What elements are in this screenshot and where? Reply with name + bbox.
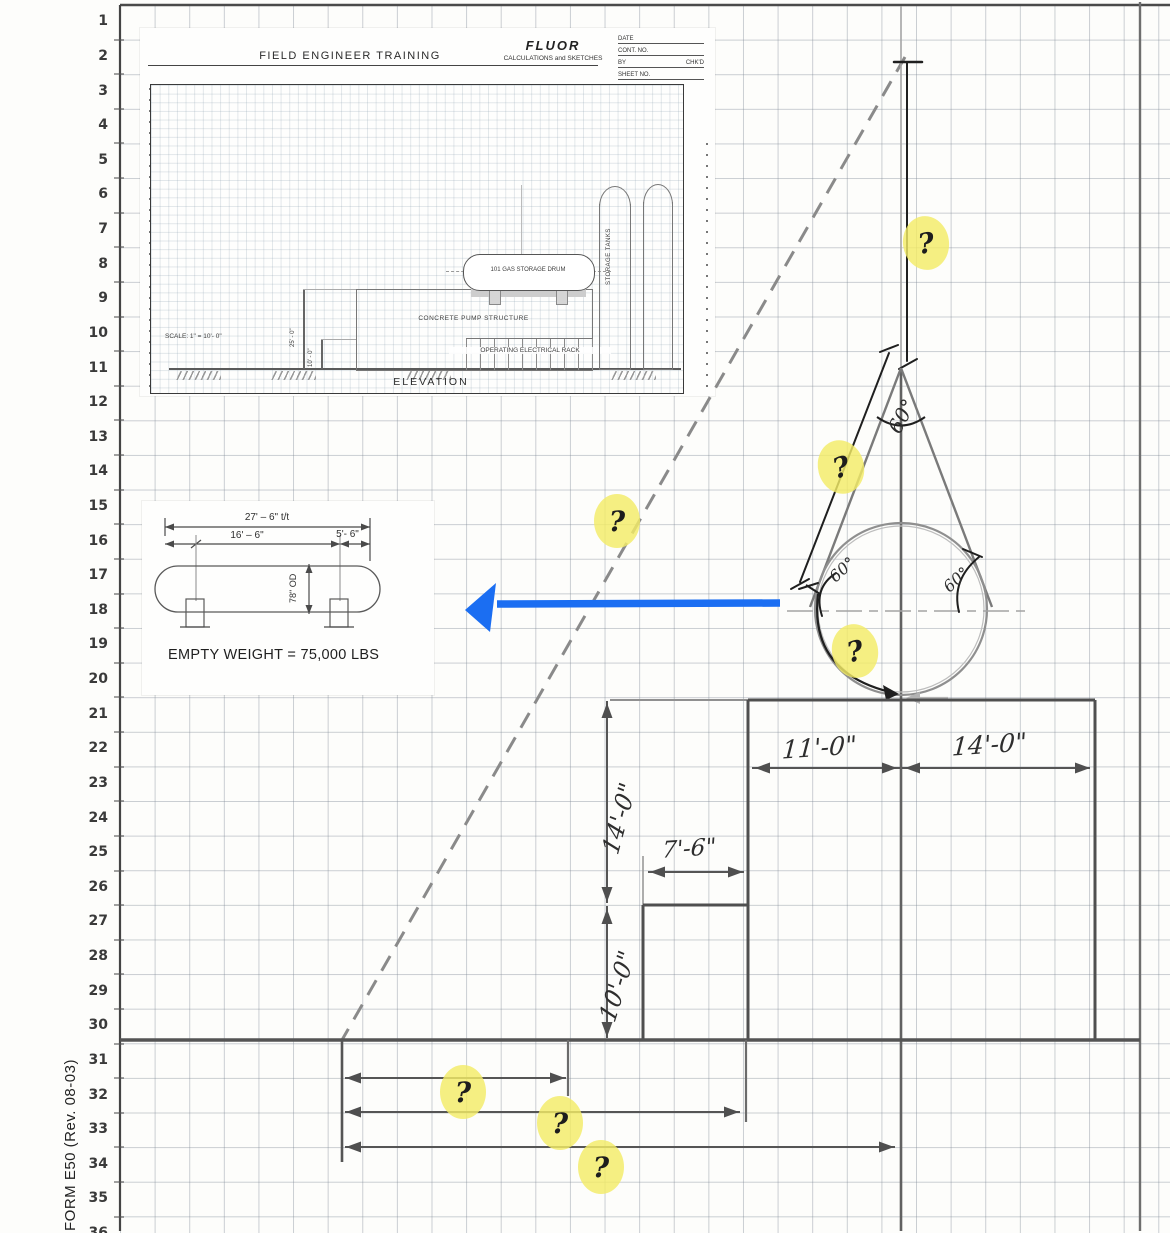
row-number: 13	[72, 429, 108, 445]
row-number: 18	[72, 602, 108, 618]
row-tick	[114, 939, 124, 941]
row-number: 9	[72, 290, 108, 306]
dashed-diagonal-line	[342, 57, 905, 1040]
row-number: 16	[72, 533, 108, 549]
row-tick	[114, 766, 124, 768]
row-tick	[114, 558, 124, 560]
row-tick	[114, 593, 124, 595]
row-number: 24	[72, 810, 108, 826]
row-number: 22	[72, 740, 108, 756]
row-tick	[114, 1112, 124, 1114]
row-number: 2	[72, 48, 108, 64]
row-number: 6	[72, 186, 108, 202]
row-number: 10	[72, 325, 108, 341]
dimension-lines	[345, 701, 1090, 1147]
row-number: 17	[72, 567, 108, 583]
row-number: 30	[72, 1017, 108, 1033]
row-tick	[114, 662, 124, 664]
row-tick	[114, 835, 124, 837]
dimension-arrowheads	[346, 703, 1090, 1153]
row-tick	[114, 73, 124, 75]
row-tick	[114, 385, 124, 387]
row-tick	[114, 108, 124, 110]
wrap-angle-arc	[817, 594, 890, 692]
row-number: 11	[72, 360, 108, 376]
row-tick	[114, 973, 124, 975]
row-tick	[114, 246, 124, 248]
blue-arrow-head	[465, 583, 496, 632]
hand-sketch-layer	[0, 0, 1170, 1233]
row-tick	[114, 142, 124, 144]
wrap-arc-arrowhead	[883, 685, 899, 700]
row-tick	[114, 1043, 124, 1045]
row-number: 5	[72, 152, 108, 168]
row-number: 28	[72, 948, 108, 964]
row-tick	[114, 454, 124, 456]
row-tick	[114, 731, 124, 733]
row-tick	[114, 212, 124, 214]
row-tick	[114, 177, 124, 179]
row-tick	[114, 696, 124, 698]
row-number: 12	[72, 394, 108, 410]
row-number: 7	[72, 221, 108, 237]
row-number: 21	[72, 706, 108, 722]
row-tick	[114, 1077, 124, 1079]
row-tick	[114, 523, 124, 525]
row-tick	[114, 419, 124, 421]
ink-height-dimension	[894, 62, 922, 369]
row-number-margin: 1234567891011121314151617181920212223242…	[72, 0, 112, 1233]
structure-outline	[120, 700, 1140, 1162]
row-number: 14	[72, 463, 108, 479]
row-tick	[114, 281, 124, 283]
row-number: 3	[72, 83, 108, 99]
row-number: 19	[72, 636, 108, 652]
row-tick	[114, 1146, 124, 1148]
row-tick	[114, 39, 124, 41]
row-number: 8	[72, 256, 108, 272]
row-tick	[114, 1008, 124, 1010]
row-tick	[114, 627, 124, 629]
ink-sling-dimension	[791, 345, 898, 589]
row-number: 25	[72, 844, 108, 860]
row-number: 4	[72, 117, 108, 133]
row-tick	[114, 1216, 124, 1218]
form-number-label: FORM E50 (Rev. 08-03)	[62, 1059, 79, 1231]
row-number: 20	[72, 671, 108, 687]
row-tick	[114, 1181, 124, 1183]
worksheet-page: 1234567891011121314151617181920212223242…	[0, 0, 1170, 1233]
row-number: 15	[72, 498, 108, 514]
row-tick	[114, 489, 124, 491]
row-number: 27	[72, 913, 108, 929]
row-number: 23	[72, 775, 108, 791]
row-tick	[114, 800, 124, 802]
blue-pointer-arrow	[465, 583, 780, 632]
row-number: 1	[72, 13, 108, 29]
row-tick	[114, 870, 124, 872]
row-number: 29	[72, 983, 108, 999]
row-tick	[114, 350, 124, 352]
row-tick	[114, 904, 124, 906]
row-tick	[114, 316, 124, 318]
row-number: 26	[72, 879, 108, 895]
